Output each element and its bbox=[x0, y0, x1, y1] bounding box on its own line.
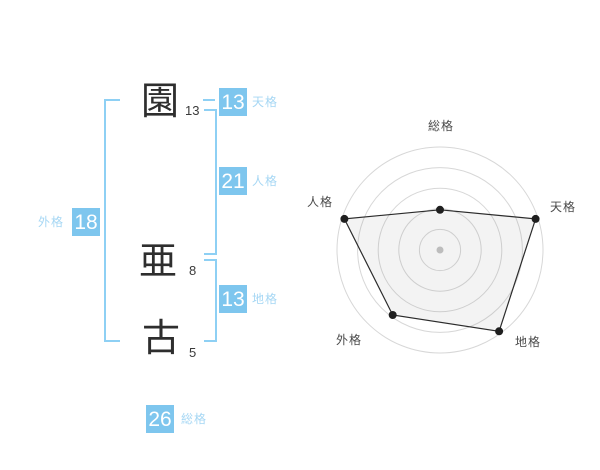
gaikaku-label: 外格 bbox=[38, 216, 64, 230]
jinkaku-label: 人格 bbox=[252, 175, 278, 189]
stroke-count-1: 13 bbox=[185, 104, 199, 117]
stroke-count-2: 8 bbox=[189, 264, 196, 277]
name-analysis-widget: 園 亜 古 13 8 5 13 天格 21 人格 13 地格 18 外格 26 … bbox=[0, 0, 600, 470]
jinkaku-bracket bbox=[204, 109, 217, 255]
kanji-char-3: 古 bbox=[142, 320, 180, 358]
stroke-count-3: 5 bbox=[189, 346, 196, 359]
kanji-char-1: 園 bbox=[141, 83, 179, 121]
radar-data-point bbox=[436, 206, 444, 214]
radar-data-point bbox=[340, 215, 348, 223]
radar-data-point bbox=[495, 327, 503, 335]
kanji-char-2: 亜 bbox=[139, 243, 177, 281]
chikaku-label: 地格 bbox=[252, 293, 278, 307]
soukaku-label: 総格 bbox=[181, 413, 207, 427]
tenkaku-dash bbox=[203, 99, 215, 101]
radar-axis-label-soukaku: 総格 bbox=[428, 120, 454, 134]
chikaku-bracket bbox=[204, 259, 217, 342]
radar-chart-svg bbox=[300, 100, 580, 360]
tenkaku-value-box: 13 bbox=[219, 88, 247, 116]
gaikaku-bracket bbox=[104, 99, 120, 342]
radar-data-point bbox=[389, 311, 397, 319]
radar-data-point bbox=[532, 215, 540, 223]
radar-data-polygon bbox=[344, 210, 535, 331]
radar-axis-label-tenkaku: 天格 bbox=[550, 201, 576, 215]
gaikaku-value-box: 18 bbox=[72, 208, 100, 236]
chikaku-value-box: 13 bbox=[219, 285, 247, 313]
jinkaku-value-box: 21 bbox=[219, 167, 247, 195]
radar-center-dot bbox=[437, 247, 444, 254]
radar-axis-label-jinkaku: 人格 bbox=[307, 196, 333, 210]
radar-axis-label-chikaku: 地格 bbox=[515, 336, 541, 350]
soukaku-value-box: 26 bbox=[146, 405, 174, 433]
radar-axis-label-gaikaku: 外格 bbox=[336, 334, 362, 348]
tenkaku-label: 天格 bbox=[252, 96, 278, 110]
